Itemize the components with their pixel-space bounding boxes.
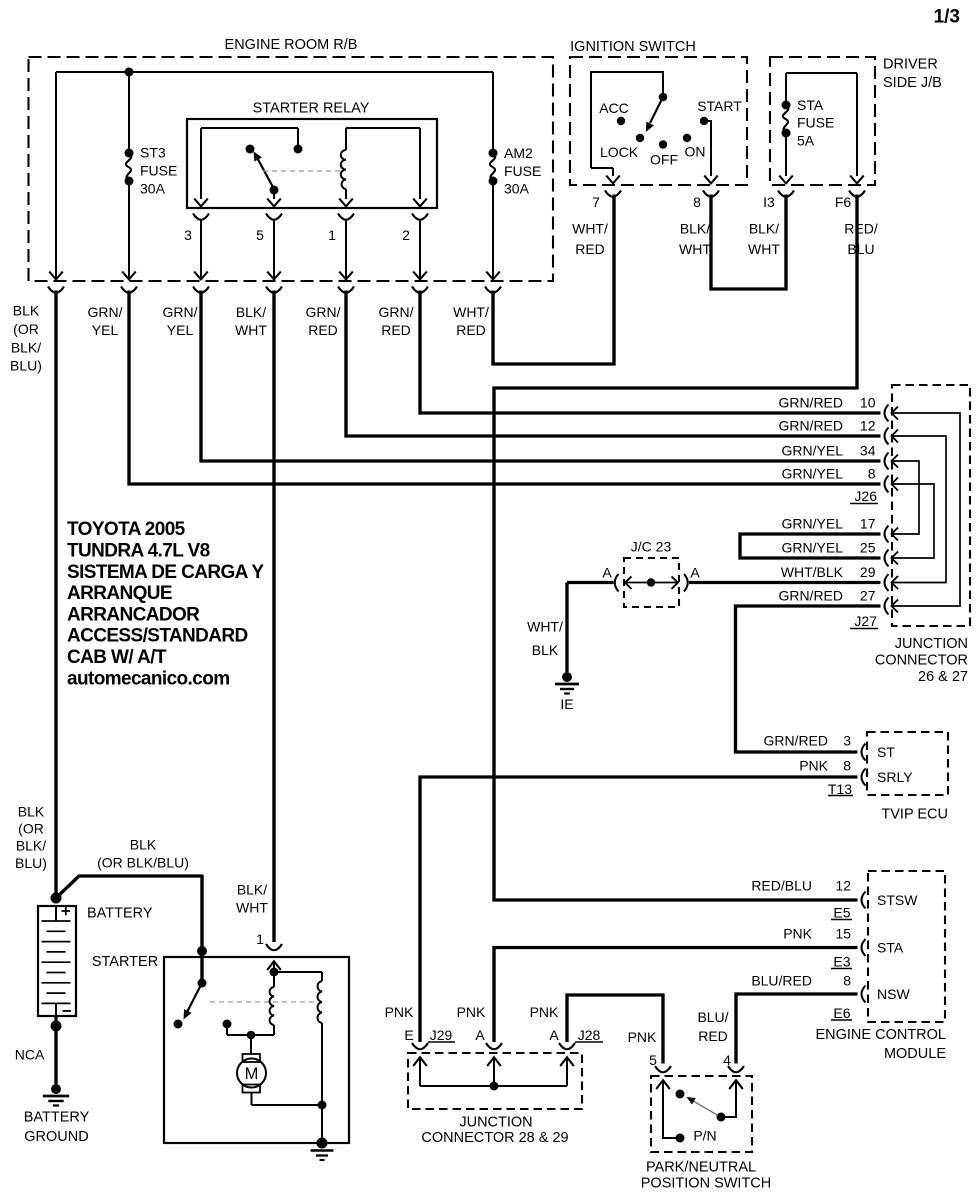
svg-text:RED: RED [381, 322, 411, 338]
svg-text:YEL: YEL [92, 322, 119, 338]
svg-text:GRN/RED: GRN/RED [778, 418, 843, 434]
svg-text:RED: RED [456, 322, 486, 338]
svg-text:RED/BLU: RED/BLU [751, 878, 812, 894]
svg-text:GRN/RED: GRN/RED [763, 733, 828, 749]
svg-text:17: 17 [860, 516, 876, 532]
svg-text:3: 3 [184, 227, 192, 243]
svg-text:BLK/: BLK/ [236, 304, 266, 320]
svg-text:25: 25 [860, 540, 876, 556]
svg-text:GRN/YEL: GRN/YEL [782, 540, 844, 556]
svg-text:FUSE: FUSE [504, 163, 541, 179]
svg-text:FUSE: FUSE [140, 163, 177, 179]
svg-text:7: 7 [592, 194, 600, 210]
svg-text:J/C 23: J/C 23 [631, 539, 672, 555]
svg-text:DRIVER: DRIVER [883, 57, 938, 73]
svg-text:NCA: NCA [15, 1047, 45, 1063]
svg-text:BATTERY: BATTERY [24, 1110, 90, 1126]
svg-text:AM2: AM2 [504, 145, 533, 161]
svg-text:GROUND: GROUND [24, 1129, 88, 1145]
svg-text:RED: RED [308, 322, 338, 338]
svg-text:BATTERY: BATTERY [87, 906, 153, 922]
svg-text:GRN/RED: GRN/RED [778, 588, 843, 604]
svg-text:1: 1 [328, 227, 336, 243]
svg-text:START: START [697, 98, 742, 114]
svg-text:12: 12 [860, 418, 876, 434]
svg-text:BLU/RED: BLU/RED [751, 973, 812, 989]
svg-text:26 & 27: 26 & 27 [918, 669, 968, 685]
svg-text:J28: J28 [578, 1027, 601, 1043]
svg-text:BLK: BLK [532, 642, 559, 658]
svg-text:8: 8 [843, 973, 851, 989]
svg-text:WHT/: WHT/ [527, 619, 563, 635]
svg-text:ENGINE ROOM R/B: ENGINE ROOM R/B [225, 37, 358, 53]
svg-text:RED: RED [575, 241, 605, 257]
svg-text:BLK: BLK [18, 804, 45, 820]
svg-text:E6: E6 [833, 1005, 850, 1021]
svg-text:NSW: NSW [877, 986, 910, 1002]
svg-text:BLK: BLK [130, 837, 157, 853]
svg-text:PNK: PNK [530, 1004, 559, 1020]
svg-text:8: 8 [843, 758, 851, 774]
svg-text:BLU): BLU) [15, 855, 47, 871]
svg-text:WHT: WHT [748, 241, 780, 257]
svg-text:5A: 5A [797, 133, 815, 149]
svg-text:JUNCTION: JUNCTION [459, 1115, 532, 1131]
svg-text:(OR: (OR [18, 821, 44, 837]
svg-text:E: E [404, 1027, 413, 1043]
svg-text:29: 29 [860, 564, 876, 580]
svg-text:PNK: PNK [628, 1029, 657, 1045]
svg-text:CAB W/ A/T: CAB W/ A/T [67, 647, 167, 668]
svg-text:BLU/: BLU/ [697, 1009, 728, 1025]
svg-text:FUSE: FUSE [797, 115, 834, 131]
svg-text:BLK/: BLK/ [680, 221, 710, 237]
svg-text:1: 1 [256, 931, 264, 947]
svg-text:4: 4 [723, 1052, 731, 1068]
svg-text:T13: T13 [828, 781, 852, 797]
svg-text:STA: STA [797, 97, 824, 113]
svg-text:POSITION SWITCH: POSITION SWITCH [641, 1176, 772, 1192]
svg-text:J26: J26 [854, 488, 877, 504]
svg-text:34: 34 [860, 443, 876, 459]
svg-text:PNK: PNK [457, 1004, 486, 1020]
svg-text:8: 8 [868, 466, 876, 482]
svg-text:IE: IE [560, 696, 573, 712]
svg-text:GRN/: GRN/ [379, 304, 414, 320]
svg-text:TUNDRA 4.7L V8: TUNDRA 4.7L V8 [67, 541, 210, 562]
svg-text:A: A [549, 1027, 559, 1043]
svg-text:WHT: WHT [236, 900, 268, 916]
svg-text:(OR: (OR [13, 321, 39, 337]
svg-text:GRN/: GRN/ [88, 304, 123, 320]
svg-text:12: 12 [835, 878, 851, 894]
svg-text:TVIP ECU: TVIP ECU [881, 807, 948, 823]
svg-text:3: 3 [843, 733, 851, 749]
svg-text:PNK: PNK [783, 926, 812, 942]
svg-text:BLK: BLK [13, 303, 40, 319]
svg-text:STARTER: STARTER [92, 954, 158, 970]
svg-text:ON: ON [685, 144, 706, 160]
svg-text:OFF: OFF [650, 152, 678, 168]
svg-text:PNK: PNK [799, 758, 828, 774]
svg-text:CONNECTOR: CONNECTOR [875, 653, 968, 669]
svg-text:ST3: ST3 [140, 145, 166, 161]
svg-text:JUNCTION: JUNCTION [895, 636, 968, 652]
svg-text:E5: E5 [833, 905, 850, 921]
svg-text:PNK: PNK [385, 1004, 414, 1020]
svg-text:STA: STA [877, 940, 904, 956]
svg-text:10: 10 [860, 395, 876, 411]
svg-text:STSW: STSW [877, 892, 918, 908]
svg-text:ACC: ACC [599, 100, 629, 116]
svg-text:WHT/BLK: WHT/BLK [781, 564, 844, 580]
svg-text:ST: ST [877, 744, 895, 760]
svg-text:SRLY: SRLY [877, 769, 913, 785]
svg-text:TOYOTA 2005: TOYOTA 2005 [67, 519, 186, 540]
svg-text:A: A [475, 1027, 485, 1043]
svg-text:GRN/YEL: GRN/YEL [782, 516, 844, 532]
svg-text:BLK/: BLK/ [11, 339, 41, 355]
svg-text:5: 5 [256, 227, 264, 243]
svg-text:SISTEMA DE CARGA Y: SISTEMA DE CARGA Y [67, 562, 264, 583]
svg-text:(OR BLK/BLU): (OR BLK/BLU) [97, 855, 189, 871]
svg-text:IGNITION SWITCH: IGNITION SWITCH [570, 39, 696, 55]
svg-text:WHT: WHT [679, 241, 711, 257]
svg-text:SIDE J/B: SIDE J/B [883, 75, 942, 91]
svg-text:GRN/: GRN/ [163, 304, 198, 320]
svg-text:LOCK: LOCK [600, 144, 639, 160]
svg-text:8: 8 [693, 194, 701, 210]
svg-text:BLK/: BLK/ [749, 221, 779, 237]
svg-text:BLU): BLU) [10, 358, 42, 374]
svg-text:automecanico.com: automecanico.com [67, 668, 230, 689]
svg-text:WHT/: WHT/ [572, 221, 608, 237]
svg-text:J27: J27 [854, 613, 877, 629]
svg-text:BLK/: BLK/ [16, 838, 46, 854]
svg-text:WHT/: WHT/ [453, 304, 489, 320]
svg-text:ARRANQUE: ARRANQUE [67, 583, 172, 604]
svg-text:P/N: P/N [693, 1128, 716, 1144]
svg-text:PARK/NEUTRAL: PARK/NEUTRAL [646, 1160, 756, 1176]
svg-text:GRN/YEL: GRN/YEL [782, 443, 844, 459]
svg-text:15: 15 [835, 926, 851, 942]
svg-text:RED: RED [698, 1028, 728, 1044]
svg-text:YEL: YEL [167, 322, 194, 338]
svg-text:GRN/RED: GRN/RED [778, 395, 843, 411]
svg-text:MODULE: MODULE [884, 1046, 946, 1062]
svg-text:I3: I3 [763, 194, 775, 210]
svg-text:30A: 30A [140, 181, 166, 197]
svg-text:M: M [245, 1065, 259, 1083]
svg-text:E3: E3 [833, 954, 850, 970]
svg-text:RED/: RED/ [844, 221, 878, 237]
svg-text:BLK/: BLK/ [237, 882, 267, 898]
svg-text:ENGINE CONTROL: ENGINE CONTROL [815, 1027, 946, 1043]
svg-text:GRN/YEL: GRN/YEL [782, 466, 844, 482]
svg-text:30A: 30A [504, 181, 530, 197]
svg-text:J29: J29 [430, 1027, 453, 1043]
svg-text:CONNECTOR 28 & 29: CONNECTOR 28 & 29 [421, 1130, 568, 1146]
svg-text:27: 27 [860, 588, 876, 604]
svg-text:A: A [690, 565, 700, 581]
svg-text:ACCESS/STANDARD: ACCESS/STANDARD [67, 626, 248, 647]
svg-text:STARTER RELAY: STARTER RELAY [253, 101, 370, 117]
svg-text:BLU: BLU [847, 241, 874, 257]
svg-text:WHT: WHT [235, 322, 267, 338]
svg-text:F6: F6 [835, 194, 852, 210]
svg-text:ARRANCADOR: ARRANCADOR [67, 604, 200, 625]
svg-text:A: A [602, 565, 612, 581]
svg-text:2: 2 [402, 227, 410, 243]
svg-text:1/3: 1/3 [934, 6, 960, 27]
svg-text:GRN/: GRN/ [306, 304, 341, 320]
